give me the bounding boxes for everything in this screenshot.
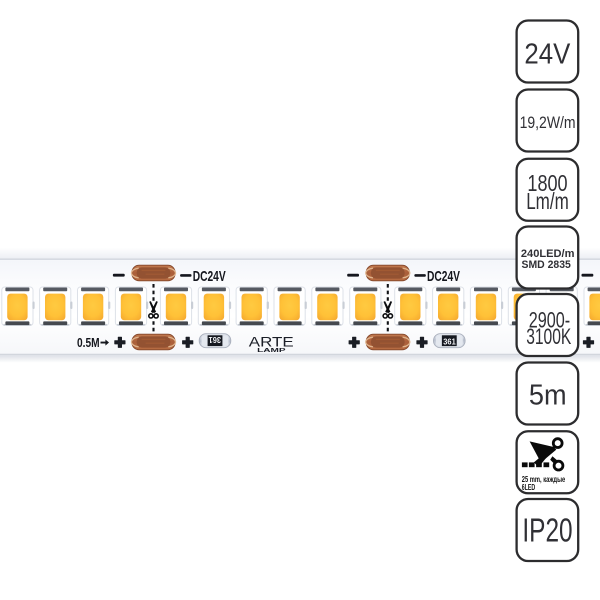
svg-text:LAMP: LAMP	[257, 348, 286, 354]
svg-text:DC24V: DC24V	[427, 269, 460, 285]
svg-text:19,2W/m: 19,2W/m	[520, 113, 576, 132]
svg-text:0.5M: 0.5M	[77, 335, 100, 350]
svg-text:DC24V: DC24V	[193, 269, 226, 285]
svg-text:Lm/m: Lm/m	[526, 188, 569, 214]
svg-text:IP20: IP20	[522, 512, 572, 549]
svg-text:5m: 5m	[529, 380, 567, 412]
svg-text:3100K: 3100K	[526, 324, 571, 349]
svg-text:SMD 2835: SMD 2835	[522, 259, 571, 271]
svg-text:24V: 24V	[524, 38, 570, 70]
svg-text:6LED: 6LED	[522, 482, 535, 492]
